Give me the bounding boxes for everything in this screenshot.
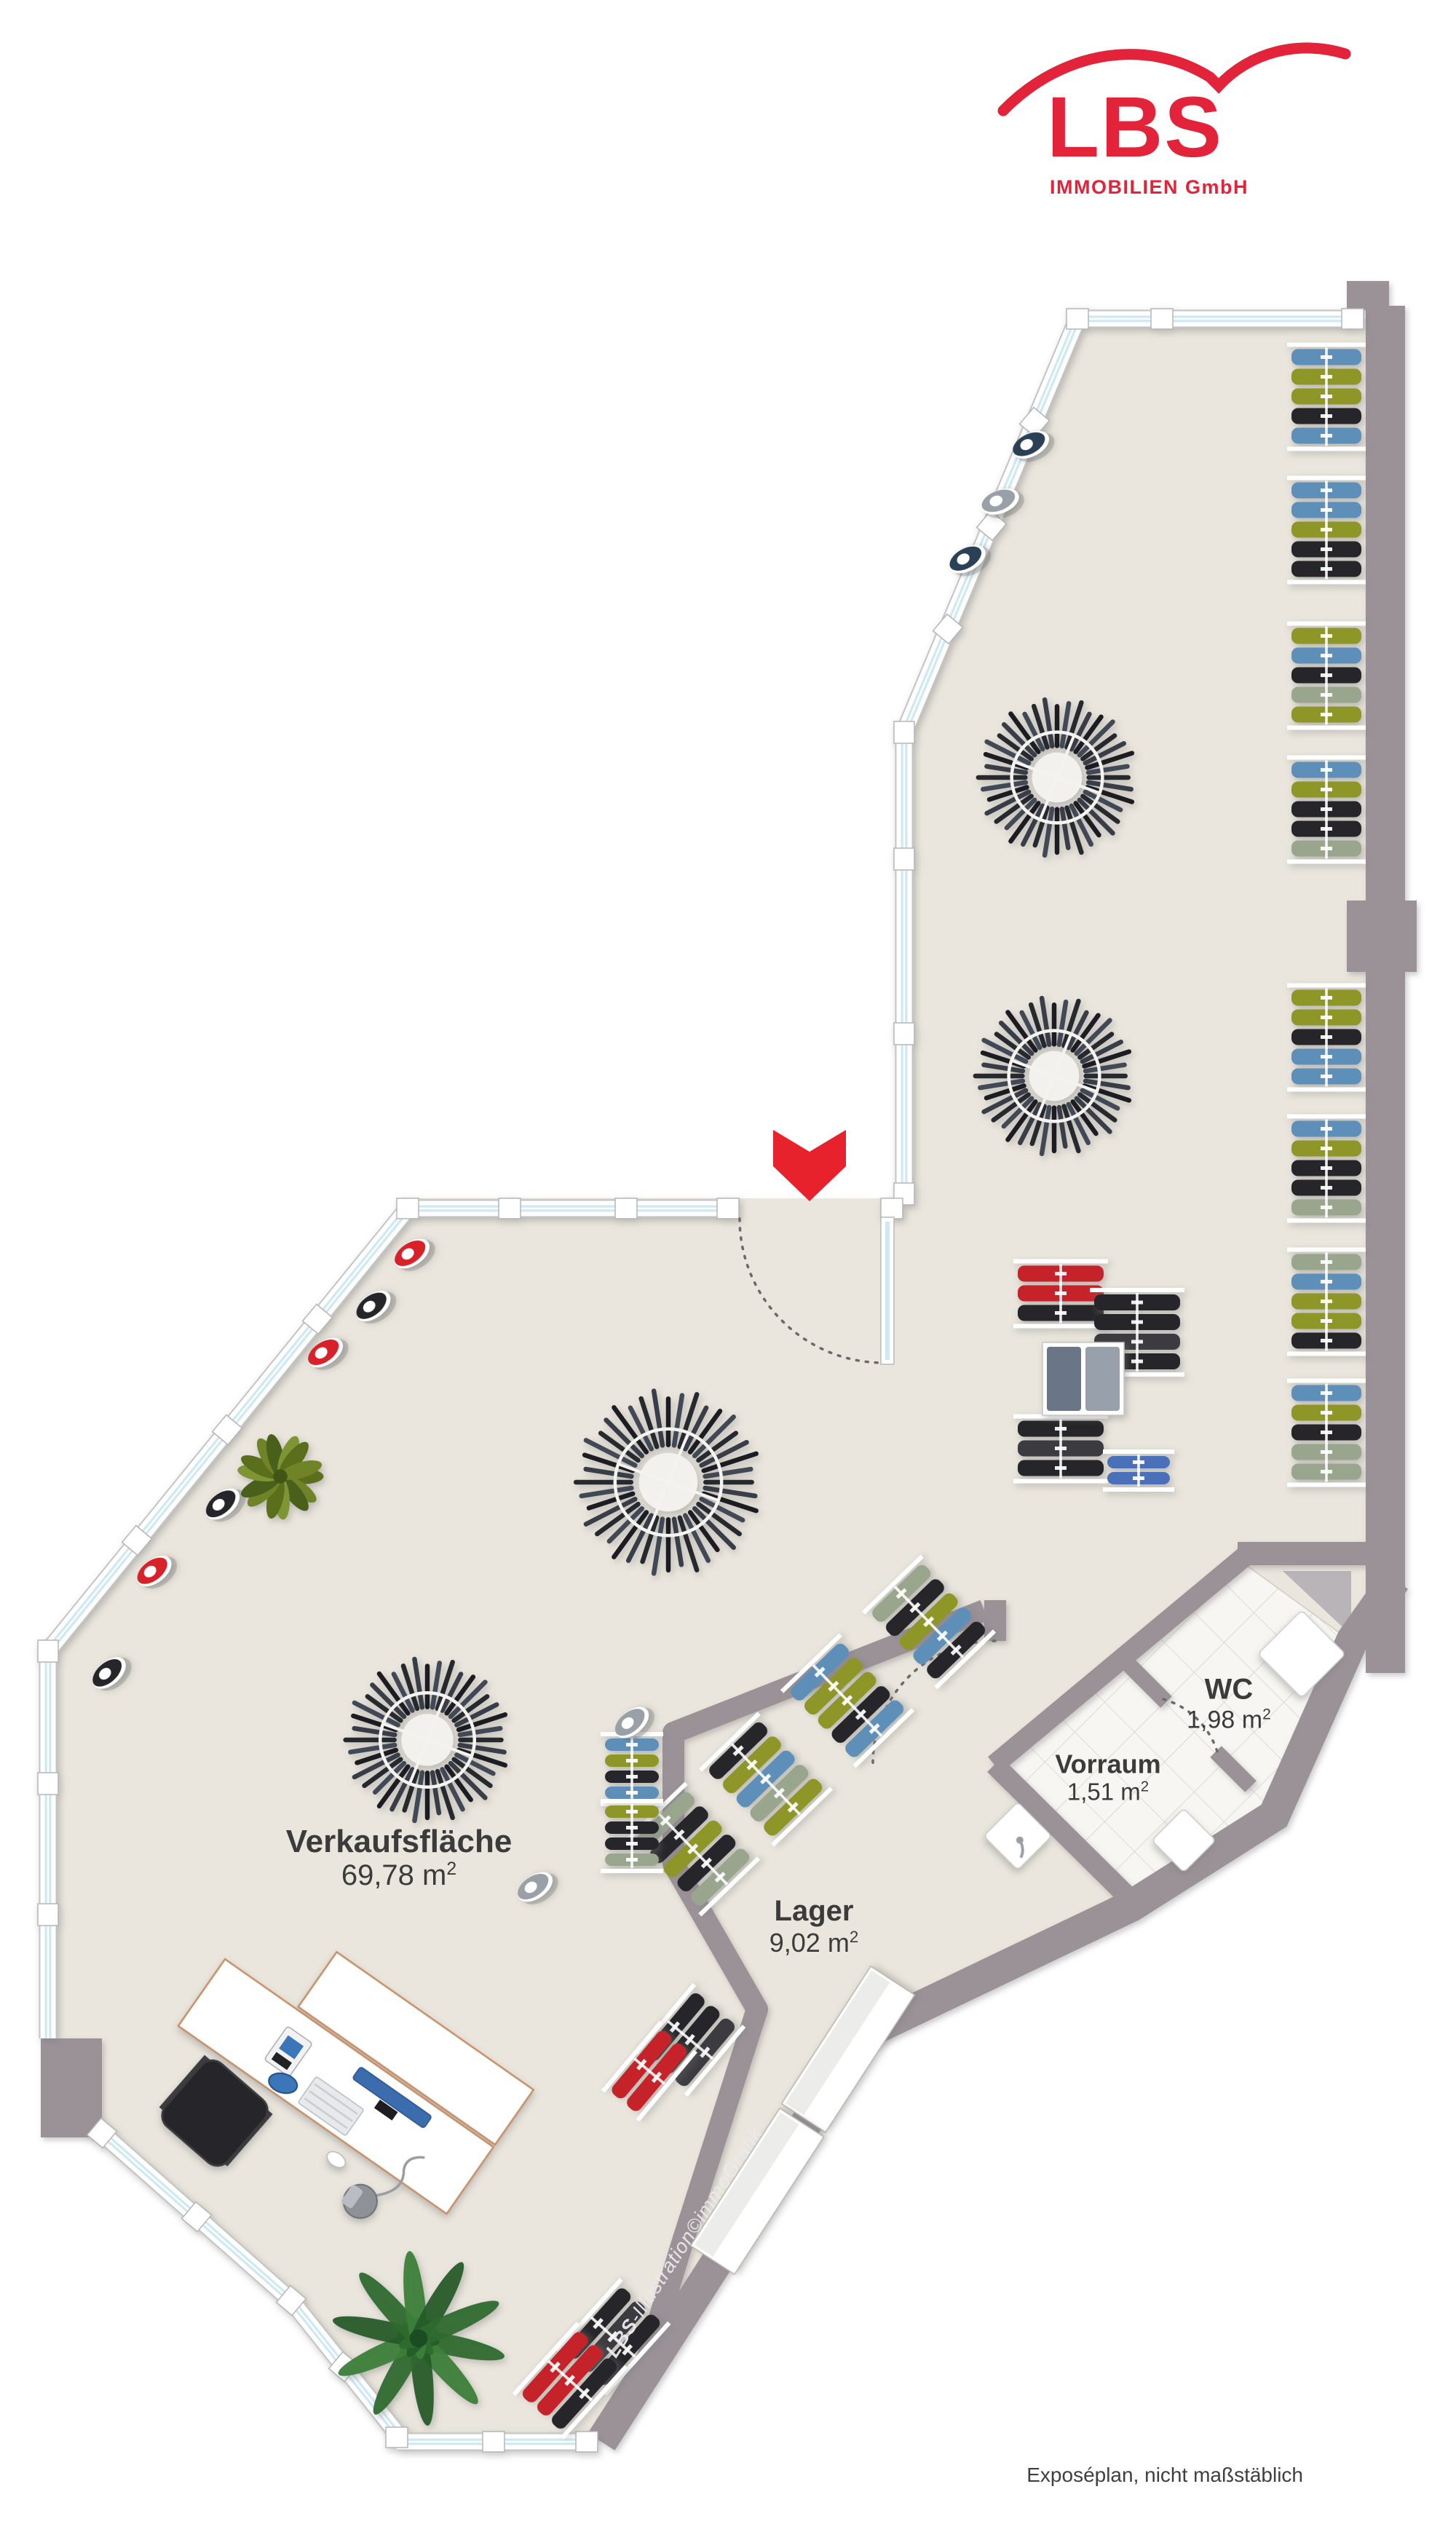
plan-caption: Exposéplan, nicht maßstäblich [859, 2464, 1303, 2487]
clothing-rack-icon [1287, 756, 1366, 864]
logo-subtitle: IMMOBILIEN GmbH [1050, 176, 1249, 199]
entrance-arrow-icon [773, 1130, 846, 1201]
clothing-rack-icon [1287, 1379, 1366, 1487]
clothing-rack-icon [1287, 343, 1366, 451]
wall-stub-top-right [1347, 281, 1389, 310]
display-table-icon [1042, 1342, 1124, 1415]
lbs-logo: LBS IMMOBILIEN GmbH [976, 25, 1383, 207]
entrance-door-leaf [885, 1222, 890, 1360]
floorplan-illustration [0, 0, 1456, 2532]
floorplan-page: LBS IMMOBILIEN GmbH Verkaufsfläche 69,78… [0, 0, 1456, 2532]
pillar-left [41, 2038, 102, 2137]
wc-north-wall [1238, 1542, 1405, 1565]
right-wall-door-block [1347, 901, 1417, 972]
clothing-rack-icon [1287, 622, 1366, 730]
clothing-rack-icon [1287, 984, 1366, 1092]
clothing-rack-icon [1287, 1115, 1366, 1223]
clothing-rack-icon [1287, 1248, 1366, 1356]
clothing-rack-icon [1287, 476, 1366, 585]
clothing-rack-icon [1013, 1259, 1108, 1329]
clothing-rack-icon [1013, 1415, 1108, 1484]
logo-wordmark: LBS [1047, 84, 1223, 170]
